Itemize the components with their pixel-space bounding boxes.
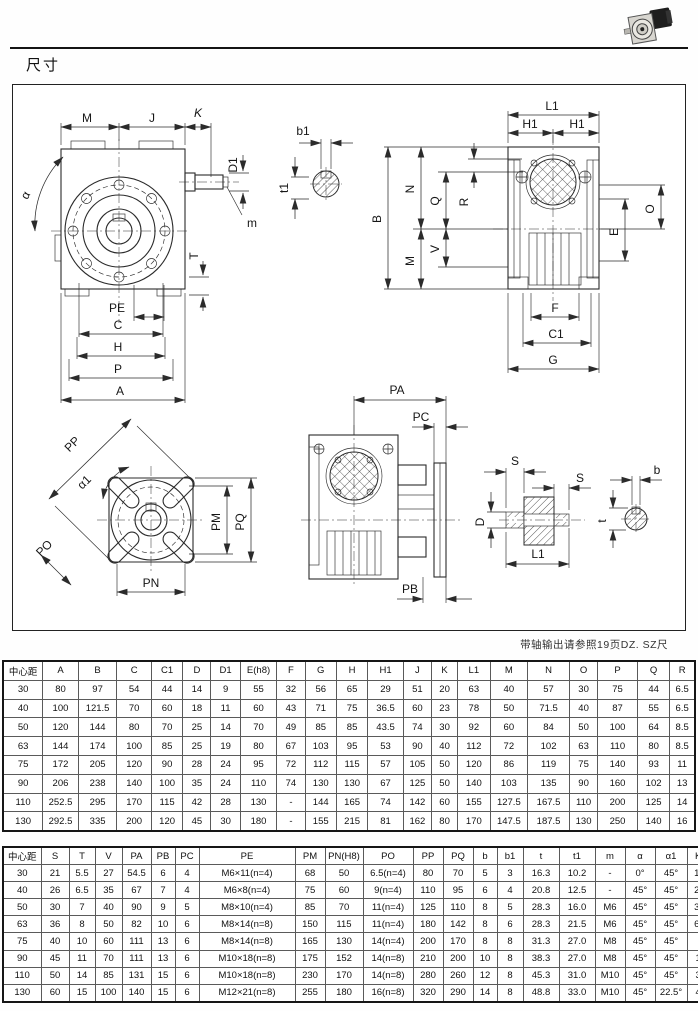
flange-view-drawing: PP α1 PO PM PQ PN <box>33 419 257 596</box>
dim-label-G: G <box>548 353 557 367</box>
column-header: T <box>69 847 95 865</box>
cell: 295 <box>78 793 117 812</box>
cell: 11 <box>69 950 95 967</box>
cell: M6×8(n=4) <box>199 882 295 899</box>
cell: 48 <box>687 984 698 1002</box>
cell: 97 <box>78 680 117 699</box>
cell: 18 <box>183 699 211 718</box>
cell: 120 <box>43 718 79 737</box>
cell: M8 <box>595 933 625 950</box>
table-row: 75401060111136M8×14(n=8)16513014(n=4)200… <box>3 933 698 950</box>
cell: 54.5 <box>122 865 151 882</box>
cell: 28.3 <box>523 916 559 933</box>
cell: 16 <box>670 812 695 831</box>
dim-label-m: m <box>247 216 257 230</box>
cell: 93 <box>637 755 669 774</box>
cell: 65 <box>336 680 367 699</box>
cell: 13 <box>670 774 695 793</box>
cell: 9 <box>151 899 175 916</box>
cell: 70 <box>95 950 122 967</box>
cell: 50 <box>432 774 458 793</box>
cell: 172 <box>43 755 79 774</box>
cell: 6.5 <box>69 882 95 899</box>
cell: 170 <box>325 967 363 984</box>
cell: 8.5 <box>670 737 695 756</box>
cell: 170 <box>458 812 490 831</box>
cell: 4 <box>175 882 199 899</box>
dim-label-J: J <box>149 111 155 125</box>
table-row: 9020623814010035241107413013067125501401… <box>3 774 695 793</box>
cell: 140 <box>458 774 490 793</box>
cell: 80 <box>432 812 458 831</box>
cell: 57 <box>528 680 570 699</box>
cell: M6 <box>595 899 625 916</box>
dim-label-O: O <box>643 204 657 213</box>
cell: 103 <box>305 737 336 756</box>
column-header: J <box>403 661 431 680</box>
cell: 82 <box>122 916 151 933</box>
column-header: L1 <box>458 661 490 680</box>
cell: 127.5 <box>490 793 528 812</box>
dim-label-L1: L1 <box>531 547 545 561</box>
cell: 31.3 <box>523 933 559 950</box>
cell: 27.0 <box>559 933 595 950</box>
shaft-section-drawing: S S D L1 <box>473 454 591 568</box>
catalog-page: 尺寸 <box>0 0 698 1011</box>
cell: 130 <box>3 984 41 1002</box>
column-header: 中心距 <box>3 847 41 865</box>
cell: 174 <box>78 737 117 756</box>
cell: 152 <box>325 950 363 967</box>
cell: 95 <box>240 755 277 774</box>
cell: 130 <box>336 774 367 793</box>
cell: 87 <box>598 699 638 718</box>
cell: 45° <box>625 984 655 1002</box>
cell: 335 <box>78 812 117 831</box>
cell: 14(n=4) <box>363 933 413 950</box>
column-header: S <box>41 847 69 865</box>
cell: M10 <box>595 967 625 984</box>
cell: 60 <box>325 882 363 899</box>
cell: 8 <box>497 933 523 950</box>
cell: 110 <box>569 793 597 812</box>
dim-label-D1: D1 <box>226 157 240 173</box>
cell: 54 <box>117 680 151 699</box>
cell: 292.5 <box>43 812 79 831</box>
cell: 13 <box>151 933 175 950</box>
cell: 64 <box>637 718 669 737</box>
cell: 125 <box>637 793 669 812</box>
cell: M12×21(n=8) <box>199 984 295 1002</box>
cell: 215 <box>336 812 367 831</box>
cell: M8×14(n=8) <box>199 916 295 933</box>
dim-label-alpha: α <box>18 189 34 202</box>
header-row: 中心距STVPAPBPCPEPMPN(H8)POPPPQbb1tt1mαα1Kg <box>3 847 698 865</box>
column-header: R <box>670 661 695 680</box>
table-row: 40100121.5706018116043717536.56023785071… <box>3 699 695 718</box>
cell: 43.5 <box>368 718 404 737</box>
cell: 45° <box>655 899 687 916</box>
cell: 290 <box>443 984 473 1002</box>
cell: 50 <box>41 967 69 984</box>
cell: 130 <box>3 812 43 831</box>
cell: 40 <box>95 899 122 916</box>
dim-label-C1: C1 <box>548 327 564 341</box>
cell: 6.5(n=4) <box>363 865 413 882</box>
cell: 2.3 <box>687 882 698 899</box>
cell: 112 <box>458 737 490 756</box>
cell: 6.2 <box>687 916 698 933</box>
dim-label-PE: PE <box>109 301 125 315</box>
shaft-output-note: 带轴输出请参照19页DZ. SZ尺 <box>520 637 668 652</box>
cell: 11(n=4) <box>363 916 413 933</box>
dim-label-R: R <box>457 197 471 206</box>
table-row: 6314417410085251980671039553904011272102… <box>3 737 695 756</box>
cell: 111 <box>122 950 151 967</box>
cell: 170 <box>117 793 151 812</box>
cell: 90 <box>569 774 597 793</box>
cell: M10×18(n=8) <box>199 950 295 967</box>
cell: 4 <box>497 882 523 899</box>
cell: 9(n=4) <box>363 882 413 899</box>
cell: 25 <box>183 718 211 737</box>
cell: 45° <box>655 865 687 882</box>
dimension-table-1-wrap: 中心距ABCC1DD1E(h8)FGHH1JKL1MNOPQR308097544… <box>2 660 696 832</box>
cell: 175 <box>295 950 325 967</box>
cell: 70 <box>325 899 363 916</box>
cell: 11 <box>211 699 240 718</box>
cell: 60 <box>403 699 431 718</box>
cell: 205 <box>78 755 117 774</box>
cell: 80 <box>240 737 277 756</box>
cell: 6.5 <box>670 680 695 699</box>
cell: 14(n=8) <box>363 950 413 967</box>
gearbox-photo-drawing <box>622 2 676 52</box>
cell: 38.3 <box>523 950 559 967</box>
dim-label-E: E <box>607 228 621 236</box>
cell: 21.5 <box>559 916 595 933</box>
cell: 72 <box>277 755 305 774</box>
dim-label-P: P <box>114 362 122 376</box>
cell: 68 <box>295 865 325 882</box>
cell: 6 <box>175 950 199 967</box>
cell: 30 <box>41 899 69 916</box>
cell: 102 <box>528 737 570 756</box>
output-key-detail-drawing: b t <box>595 463 662 548</box>
cell: 32 <box>277 680 305 699</box>
cell: 6 <box>473 882 497 899</box>
cell: 0° <box>625 865 655 882</box>
cell: 45° <box>655 967 687 984</box>
cell: M6 <box>595 916 625 933</box>
column-header: PE <box>199 847 295 865</box>
cell: 121.5 <box>78 699 117 718</box>
table-row: 110252.52951701154228130-144165741426015… <box>3 793 695 812</box>
cell: 85 <box>336 718 367 737</box>
cell: 71 <box>305 699 336 718</box>
cell: 115 <box>336 755 367 774</box>
cell: 14 <box>183 680 211 699</box>
cell: 53 <box>368 737 404 756</box>
cell: 125 <box>403 774 431 793</box>
cell: 120 <box>117 755 151 774</box>
cell: 60 <box>240 699 277 718</box>
cell: 35 <box>183 774 211 793</box>
cell: 155 <box>458 793 490 812</box>
cell: 45° <box>625 882 655 899</box>
cell: 5 <box>175 899 199 916</box>
cell: 30 <box>211 812 240 831</box>
cell: 36.5 <box>368 699 404 718</box>
cell: 180 <box>240 812 277 831</box>
cell: 100 <box>598 718 638 737</box>
cell: 144 <box>43 737 79 756</box>
cell: 74 <box>277 774 305 793</box>
cell: 8 <box>473 933 497 950</box>
cell: 15 <box>151 984 175 1002</box>
cell: 40 <box>3 882 41 899</box>
cell: 15 <box>69 984 95 1002</box>
cell: 8 <box>497 950 523 967</box>
cell: 23 <box>432 699 458 718</box>
cell: 130 <box>305 774 336 793</box>
cell: 57 <box>368 755 404 774</box>
cell: 25 <box>183 737 211 756</box>
cell: 9 <box>687 933 698 950</box>
cell: 45° <box>655 950 687 967</box>
cell: 6 <box>497 916 523 933</box>
dim-label-H: H <box>114 340 123 354</box>
dimension-table-1: 中心距ABCC1DD1E(h8)FGHH1JKL1MNOPQR308097544… <box>2 660 696 832</box>
cell: 200 <box>598 793 638 812</box>
cell: 110 <box>240 774 277 793</box>
cell: 78 <box>458 699 490 718</box>
cell: 70 <box>151 718 182 737</box>
cell: 30 <box>569 680 597 699</box>
column-header: PQ <box>443 847 473 865</box>
cell: 13 <box>687 950 698 967</box>
cell: 100 <box>95 984 122 1002</box>
column-header: O <box>569 661 597 680</box>
cell: 50 <box>3 899 41 916</box>
dim-label-H1: H1 <box>569 117 585 131</box>
column-header: PO <box>363 847 413 865</box>
cell: 60 <box>432 793 458 812</box>
dimension-table-2: 中心距STVPAPBPCPEPMPN(H8)POPPPQbb1tt1mαα1Kg… <box>2 846 698 1003</box>
cell: 90 <box>3 950 41 967</box>
cell: 95 <box>443 882 473 899</box>
dim-label-H1: H1 <box>522 117 538 131</box>
cell: 72 <box>490 737 528 756</box>
header-divider <box>10 47 688 49</box>
cell: 44 <box>637 680 669 699</box>
dim-label-t: t <box>595 519 609 523</box>
table-row: 633685082106M8×14(n=8)15011511(n=4)18014… <box>3 916 698 933</box>
cell: 5 <box>497 899 523 916</box>
cell: 45° <box>625 950 655 967</box>
cell: 44 <box>151 680 182 699</box>
cell: 162 <box>403 812 431 831</box>
cell: 10 <box>69 933 95 950</box>
cell: 75 <box>598 680 638 699</box>
cell: 70 <box>443 865 473 882</box>
cell: 14 <box>69 967 95 984</box>
column-header: t <box>523 847 559 865</box>
cell: 110 <box>3 793 43 812</box>
cell: 5 <box>473 865 497 882</box>
dim-label-B: B <box>370 215 384 223</box>
cell: 36 <box>41 916 69 933</box>
cell: 50 <box>325 865 363 882</box>
dim-label-V: V <box>428 245 442 253</box>
column-header: PA <box>122 847 151 865</box>
cell: 6.5 <box>670 699 695 718</box>
cell: 67 <box>368 774 404 793</box>
cell: 16.0 <box>559 899 595 916</box>
cell: 75 <box>569 755 597 774</box>
dim-label-b: b <box>654 463 661 477</box>
cell: 167.5 <box>528 793 570 812</box>
cell: 140 <box>117 774 151 793</box>
dim-label-PN: PN <box>143 576 160 590</box>
cell: 49 <box>277 718 305 737</box>
dim-label-K: K <box>194 106 203 120</box>
cell: 255 <box>295 984 325 1002</box>
dim-label-S: S <box>511 454 519 468</box>
column-header: b1 <box>497 847 523 865</box>
dim-label-A: A <box>116 384 124 398</box>
cell: 40 <box>490 680 528 699</box>
dim-label-PA: PA <box>389 383 404 397</box>
cell: 12 <box>473 967 497 984</box>
cell: M6×11(n=4) <box>199 865 295 882</box>
cell: 11 <box>670 755 695 774</box>
cell: 105 <box>403 755 431 774</box>
column-header: Kg <box>687 847 698 865</box>
cell: 8 <box>473 899 497 916</box>
cell: 103 <box>490 774 528 793</box>
column-header: PB <box>151 847 175 865</box>
cell: 28 <box>183 755 211 774</box>
column-header: E(h8) <box>240 661 277 680</box>
cell: 206 <box>43 774 79 793</box>
cell: 50 <box>3 718 43 737</box>
dim-label-T: T <box>187 252 201 260</box>
cell: 6 <box>151 865 175 882</box>
cell: 85 <box>151 737 182 756</box>
cell: 70 <box>117 699 151 718</box>
cell: 13 <box>151 950 175 967</box>
cell: 63 <box>458 680 490 699</box>
column-header: t1 <box>559 847 595 865</box>
cell: 45° <box>655 916 687 933</box>
dim-label-L1: L1 <box>545 99 559 113</box>
column-header: N <box>528 661 570 680</box>
column-header: K <box>432 661 458 680</box>
cell: 92 <box>458 718 490 737</box>
cell: 142 <box>443 916 473 933</box>
side-view-output-drawing: PA PC PB <box>301 383 472 603</box>
cell: 26 <box>41 882 69 899</box>
cell: 14 <box>473 984 497 1002</box>
cell: 125 <box>413 899 443 916</box>
output-shaft <box>624 28 631 34</box>
cell: 165 <box>295 933 325 950</box>
cell: 75 <box>295 882 325 899</box>
cell: 8 <box>497 967 523 984</box>
column-header: C <box>117 661 151 680</box>
cell: 10 <box>151 916 175 933</box>
side-view-drawing: L1 H1 H1 B N Q R M V E O F C1 G <box>370 99 665 373</box>
cell: 63 <box>3 916 41 933</box>
gearbox-product-photo <box>622 2 676 52</box>
cell: M10×18(n=8) <box>199 967 295 984</box>
cell: 20 <box>432 680 458 699</box>
cell: 3 <box>497 865 523 882</box>
cell: 50 <box>432 755 458 774</box>
cell: 27.0 <box>559 950 595 967</box>
table-row: 1306015100140156M12×21(n=8)25518016(n=8)… <box>3 984 698 1002</box>
cell: M10 <box>595 984 625 1002</box>
cell: 50 <box>490 699 528 718</box>
table-row: 130292.53352001204530180-155215811628017… <box>3 812 695 831</box>
cell: 95 <box>336 737 367 756</box>
cell: - <box>595 865 625 882</box>
cell: 180 <box>325 984 363 1002</box>
cell: 45 <box>183 812 211 831</box>
dim-label-D: D <box>473 517 487 526</box>
cell: 112 <box>305 755 336 774</box>
cell: 40 <box>569 699 597 718</box>
column-header: B <box>78 661 117 680</box>
cell: 80 <box>413 865 443 882</box>
cell: 60 <box>490 718 528 737</box>
cell: 8 <box>69 916 95 933</box>
cell: 67 <box>277 737 305 756</box>
cell: 280 <box>413 967 443 984</box>
column-header: m <box>595 847 625 865</box>
cell: 115 <box>151 793 182 812</box>
cell: 40 <box>3 699 43 718</box>
cell: 56 <box>305 680 336 699</box>
dim-label-F: F <box>551 301 558 315</box>
cell: 20.8 <box>523 882 559 899</box>
cell: 16(n=8) <box>363 984 413 1002</box>
dim-label-N: N <box>403 185 417 194</box>
cell: 45 <box>41 950 69 967</box>
cell: 14 <box>211 718 240 737</box>
cell: 140 <box>598 755 638 774</box>
table-row: 3080975444149553256652951206340573075446… <box>3 680 695 699</box>
table-row: 7517220512090282495721121155710550120861… <box>3 755 695 774</box>
cell: 40 <box>432 737 458 756</box>
cell: 51 <box>403 680 431 699</box>
cell: 28.3 <box>523 899 559 916</box>
cell: 147.5 <box>490 812 528 831</box>
dimension-drawings: M J K D1 m α T PE C H P A <box>13 85 685 630</box>
cell: 111 <box>122 933 151 950</box>
dim-label-PO: PO <box>33 537 55 559</box>
cell: 10 <box>473 950 497 967</box>
cell: 238 <box>78 774 117 793</box>
cell: 28 <box>211 793 240 812</box>
cell: 45° <box>655 882 687 899</box>
column-header: P <box>598 661 638 680</box>
table-row: 30215.52754.564M6×11(n=4)68506.5(n=4)807… <box>3 865 698 882</box>
cell: 200 <box>413 933 443 950</box>
column-header: PP <box>413 847 443 865</box>
cell: 230 <box>295 967 325 984</box>
